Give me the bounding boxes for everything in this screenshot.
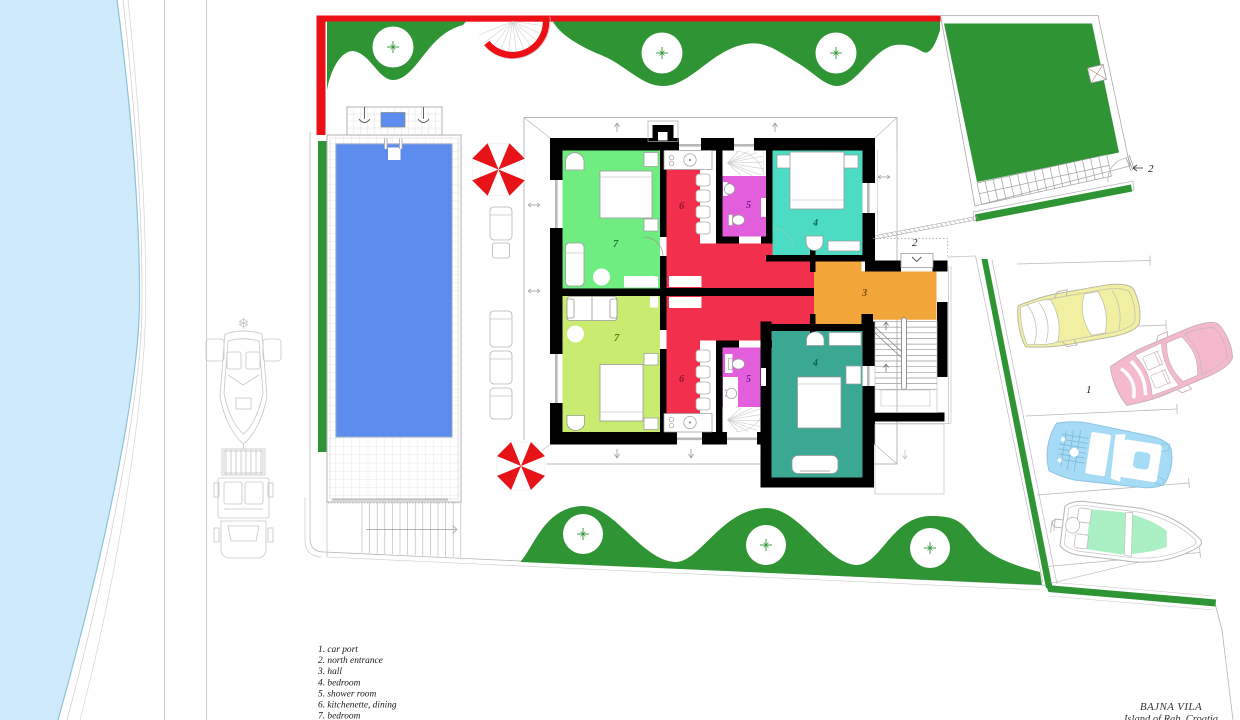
svg-text:3. hall: 3. hall (317, 667, 342, 677)
svg-text:6: 6 (679, 201, 685, 212)
svg-text:BAJNA VILA: BAJNA VILA (1140, 701, 1202, 713)
svg-text:2. north entrance: 2. north entrance (318, 656, 383, 666)
svg-text:4. bedroom: 4. bedroom (318, 678, 361, 688)
svg-text:5: 5 (746, 200, 751, 211)
svg-text:1. car port: 1. car port (318, 645, 358, 655)
svg-text:6: 6 (679, 374, 685, 385)
svg-text:7: 7 (613, 239, 619, 250)
svg-text:2: 2 (1148, 163, 1154, 175)
svg-text:1: 1 (1086, 384, 1092, 396)
svg-text:3: 3 (861, 288, 867, 299)
svg-text:4: 4 (812, 358, 818, 369)
svg-text:6. kitchenette, dining: 6. kitchenette, dining (318, 701, 397, 711)
svg-text:4: 4 (812, 218, 818, 229)
svg-text:Island of Rab, Croatia: Island of Rab, Croatia (1123, 714, 1218, 720)
svg-text:5. shower room: 5. shower room (318, 689, 376, 699)
svg-text:7: 7 (614, 333, 620, 344)
svg-text:7. bedroom: 7. bedroom (318, 712, 361, 720)
svg-text:5: 5 (746, 374, 751, 385)
